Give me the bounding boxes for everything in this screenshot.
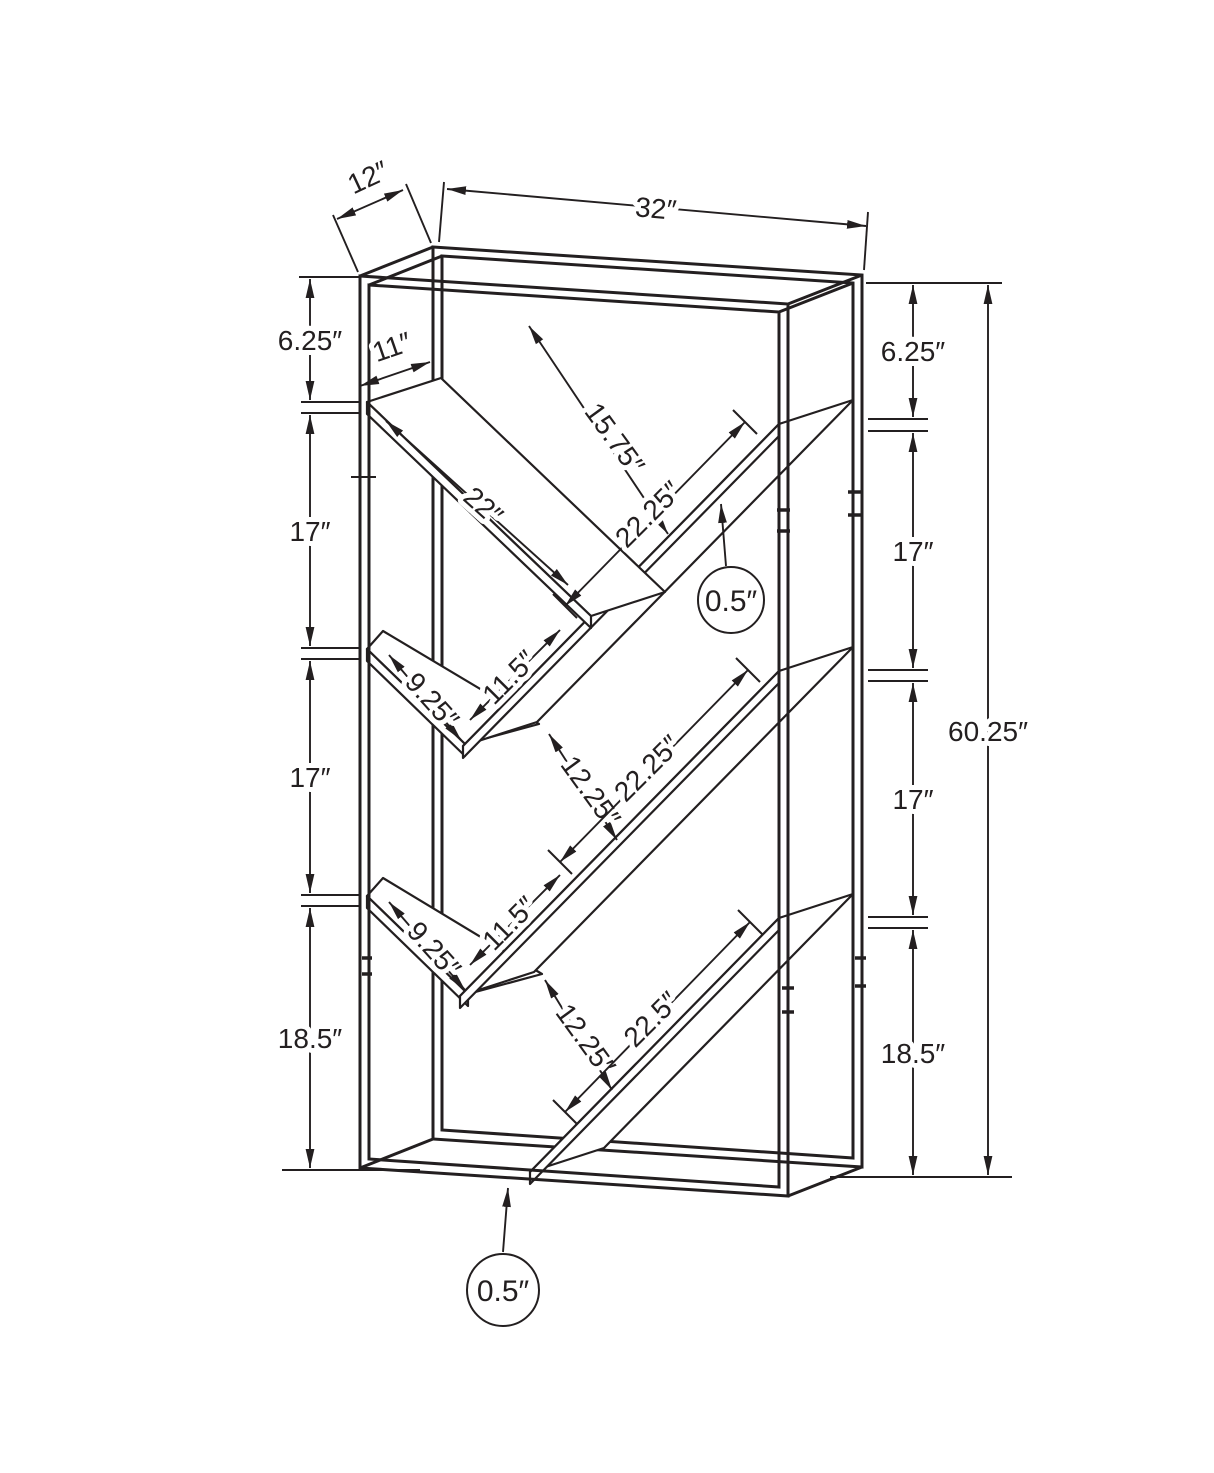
v1-top-width-label: 11″	[368, 326, 415, 368]
height-dimension: 60.25″	[948, 285, 1028, 1175]
thickness-leader	[503, 1188, 508, 1252]
width-dimension: 32″	[439, 182, 868, 270]
left-dim-label-3: 17″	[289, 762, 330, 793]
v1-thickness-label: 0.5″	[705, 585, 758, 618]
bookcase-dimension-diagram: 12″ 32″ 6.25″ 17″ 17″ 18.5″	[0, 0, 1214, 1473]
base-thickness-callout: 0.5″	[467, 1188, 539, 1326]
rail-top-left-outer	[360, 247, 433, 276]
base-thickness-label: 0.5″	[477, 1275, 530, 1308]
v1-clearance-label: 15.75″	[579, 397, 651, 480]
extension-line	[439, 182, 444, 242]
right-dim-label-1: 6.25″	[881, 336, 945, 367]
height-dim-label: 60.25″	[948, 716, 1028, 747]
rail-bottom-right-outer	[788, 1167, 862, 1196]
left-dim-label-1: 6.25″	[278, 325, 342, 356]
right-dim-label-4: 18.5″	[881, 1038, 945, 1069]
width-dim-label: 32″	[634, 191, 678, 225]
left-dim-label-2: 17″	[289, 516, 330, 547]
shelf-down1-top-face	[367, 378, 665, 616]
right-dim-label-2: 17″	[892, 536, 933, 567]
depth-dim-line	[337, 190, 403, 219]
right-dim-label-3: 17″	[892, 784, 933, 815]
extension-line	[864, 212, 868, 270]
extension-line	[406, 184, 431, 243]
depth-dim-label: 12″	[343, 155, 393, 200]
extension-line	[333, 215, 358, 272]
v3-gap-label: 12.25″	[550, 998, 622, 1081]
rail-top-right-inner	[779, 283, 853, 312]
left-dim-label-4: 18.5″	[278, 1023, 342, 1054]
drawing-canvas: 12″ 32″ 6.25″ 17″ 17″ 18.5″	[0, 0, 1214, 1473]
